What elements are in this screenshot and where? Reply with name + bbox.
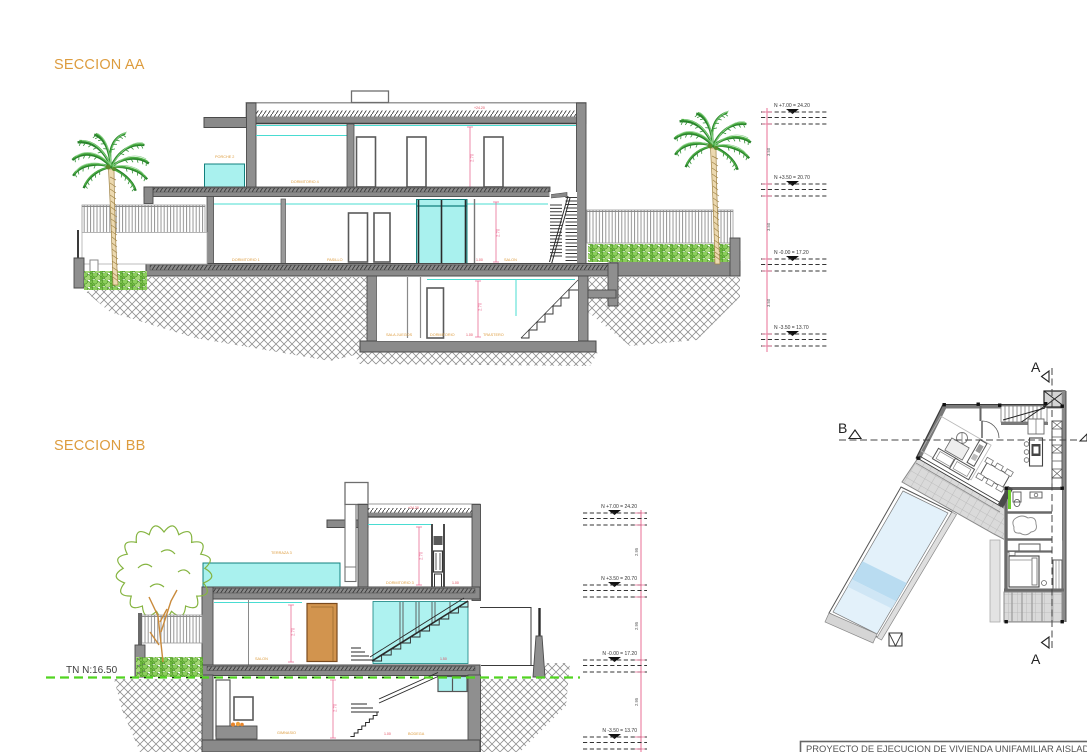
svg-text:2.70: 2.70 xyxy=(496,228,501,237)
svg-text:TERRAZA 3: TERRAZA 3 xyxy=(271,551,292,555)
svg-text:PROYECTO DE EJECUCION DE VIVI: PROYECTO DE EJECUCION DE VIVIENDA UNIFAM… xyxy=(806,743,1087,752)
svg-text:DORMITORIO 1: DORMITORIO 1 xyxy=(232,258,260,262)
svg-text:GIMNASIO: GIMNASIO xyxy=(277,731,296,735)
svg-text:1.50: 1.50 xyxy=(440,657,447,661)
svg-text:SALA JUEGOS: SALA JUEGOS xyxy=(386,333,413,337)
svg-text:N +7.00 = 24.20: N +7.00 = 24.20 xyxy=(774,103,810,109)
svg-text:DORMITORIO 3: DORMITORIO 3 xyxy=(386,581,414,585)
svg-text:N -3.50 = 13.70: N -3.50 = 13.70 xyxy=(774,325,809,331)
svg-text:2.95: 2.95 xyxy=(634,697,639,706)
svg-text:3.50: 3.50 xyxy=(766,222,771,231)
svg-text:N -0.00 = 17.20: N -0.00 = 17.20 xyxy=(774,250,809,256)
svg-text:1.00: 1.00 xyxy=(476,258,483,262)
svg-text:N +3.50 = 20.70: N +3.50 = 20.70 xyxy=(601,576,637,582)
svg-text:1.00: 1.00 xyxy=(452,581,459,585)
svg-text:BODEGA: BODEGA xyxy=(408,732,425,736)
svg-text:3.50: 3.50 xyxy=(766,298,771,307)
svg-text:+24.20: +24.20 xyxy=(408,506,419,510)
svg-text:2.95: 2.95 xyxy=(634,621,639,630)
svg-text:N -3.50 = 13.70: N -3.50 = 13.70 xyxy=(602,728,637,734)
svg-text:1.00: 1.00 xyxy=(466,333,473,337)
svg-text:N +3.50 = 20.70: N +3.50 = 20.70 xyxy=(774,175,810,181)
svg-text:PASILLO: PASILLO xyxy=(327,258,343,262)
svg-text:SECCION BB: SECCION BB xyxy=(54,438,145,454)
svg-text:A: A xyxy=(1031,651,1041,667)
svg-text:N +7.00 = 24.20: N +7.00 = 24.20 xyxy=(601,504,637,510)
svg-text:B: B xyxy=(838,420,847,436)
svg-text:TRASTERO: TRASTERO xyxy=(483,333,504,337)
svg-text:1.00: 1.00 xyxy=(384,732,391,736)
svg-text:2.70: 2.70 xyxy=(470,153,475,162)
svg-text:+24.20: +24.20 xyxy=(474,106,485,110)
svg-text:DORMITORIO 4: DORMITORIO 4 xyxy=(291,180,319,184)
svg-text:2.70: 2.70 xyxy=(478,302,483,311)
svg-text:PORCHE 2: PORCHE 2 xyxy=(215,155,234,159)
svg-text:2.70: 2.70 xyxy=(291,627,296,636)
svg-text:A: A xyxy=(1031,359,1041,375)
svg-text:SALON: SALON xyxy=(255,657,268,661)
svg-text:TN N:16.50: TN N:16.50 xyxy=(66,665,118,676)
svg-text:2.95: 2.95 xyxy=(634,547,639,556)
svg-text:2.70: 2.70 xyxy=(333,703,338,712)
svg-text:2.70: 2.70 xyxy=(419,551,424,560)
svg-text:SECCION AA: SECCION AA xyxy=(54,57,145,73)
svg-text:N -0.00 = 17.20: N -0.00 = 17.20 xyxy=(602,651,637,657)
svg-text:3.50: 3.50 xyxy=(766,147,771,156)
svg-text:SALON: SALON xyxy=(504,258,517,262)
svg-text:DORMITORIO: DORMITORIO xyxy=(430,333,455,337)
